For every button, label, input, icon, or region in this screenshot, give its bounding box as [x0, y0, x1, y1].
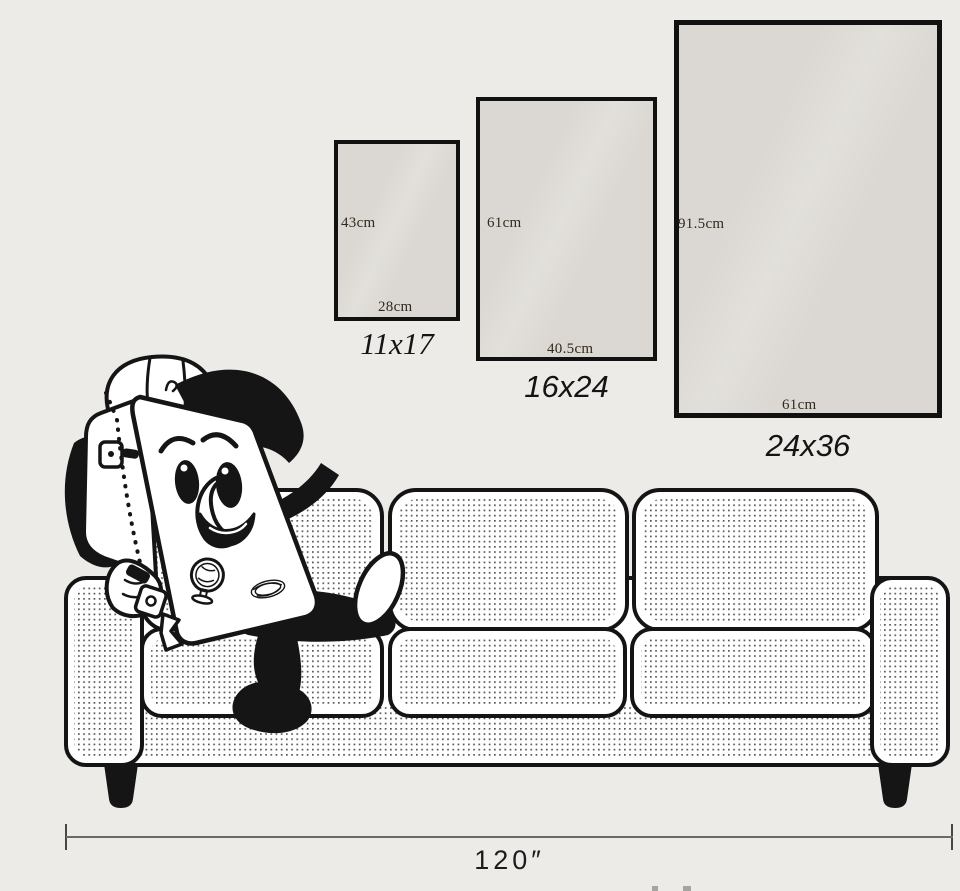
sofa-legs	[104, 764, 912, 808]
cropped-watermark-fragment	[652, 886, 658, 891]
dimension-line	[66, 836, 953, 838]
sofa-illustration	[0, 0, 960, 891]
sofa-width-label: 120″	[66, 845, 953, 876]
poster-size-guide: 43cm 28cm 11x17 61cm 40.5cm 16x24 91.5cm…	[0, 0, 960, 891]
cropped-watermark-fragment	[683, 886, 691, 891]
